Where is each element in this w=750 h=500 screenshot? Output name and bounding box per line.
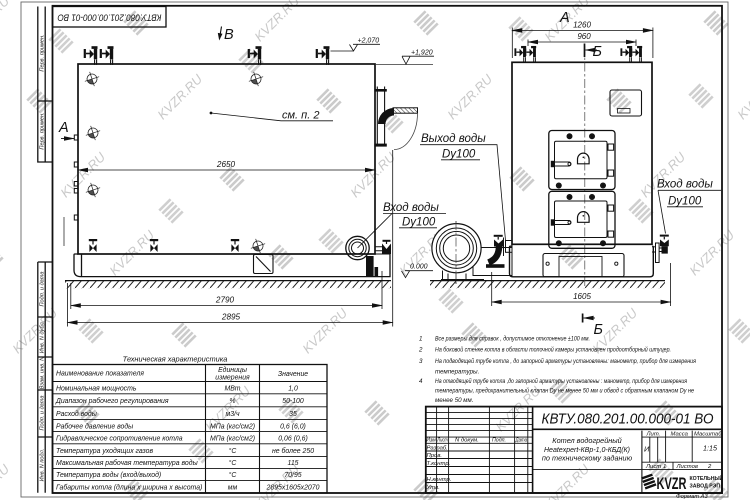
svg-text:Инв. N подл.: Инв. N подл. xyxy=(39,449,45,482)
svg-text:Котел водогрейный: Котел водогрейный xyxy=(552,436,621,445)
svg-text:1: 1 xyxy=(419,336,422,343)
svg-text:+2,070: +2,070 xyxy=(358,38,380,45)
svg-text:1260: 1260 xyxy=(573,21,591,30)
svg-text:Изм: Изм xyxy=(426,438,436,444)
svg-text:Максимальная рабочая температу: Максимальная рабочая температура воды xyxy=(56,459,198,467)
svg-text:Масса: Масса xyxy=(671,431,689,437)
svg-text:МПа (кгс/см2): МПа (кгс/см2) xyxy=(210,436,255,443)
svg-text:Номинальная мощность: Номинальная мощность xyxy=(56,386,137,393)
svg-text:Наименование показателя: Наименование показателя xyxy=(56,371,144,378)
svg-text:Расход воды: Расход воды xyxy=(56,410,97,418)
svg-text:МВт: МВт xyxy=(224,386,240,393)
svg-text:Масштаб: Масштаб xyxy=(694,431,722,437)
svg-text:115: 115 xyxy=(288,460,299,467)
svg-text:Т.контр.: Т.контр. xyxy=(427,461,451,467)
svg-text:50-100: 50-100 xyxy=(282,398,304,405)
svg-text:МПа (кгс/см2): МПа (кгс/см2) xyxy=(210,423,255,430)
svg-text:0,6 (6,0): 0,6 (6,0) xyxy=(280,423,306,430)
svg-text:0,06 (0,6): 0,06 (0,6) xyxy=(278,436,308,443)
svg-text:менее 50 мм.: менее 50 мм. xyxy=(435,397,474,404)
svg-text:Лист: Лист xyxy=(645,464,661,470)
svg-text:Пров.: Пров. xyxy=(427,453,443,459)
svg-text:Лист: Лист xyxy=(437,438,448,444)
svg-text:4: 4 xyxy=(419,378,423,385)
svg-text:°С: °С xyxy=(229,447,238,455)
svg-text:Dy100: Dy100 xyxy=(442,149,476,161)
svg-text:°С: °С xyxy=(229,471,238,479)
svg-text:Dy100: Dy100 xyxy=(402,217,436,229)
svg-text:ЗАВОД РЭП: ЗАВОД РЭП xyxy=(690,484,721,490)
svg-text:Подп. и дата: Подп. и дата xyxy=(39,271,45,306)
svg-text:температуры, предохранительный: температуры, предохранительный клапан Dу… xyxy=(435,388,694,395)
svg-text:1,0: 1,0 xyxy=(288,386,298,393)
svg-text:Выход воды: Выход воды xyxy=(421,133,486,145)
svg-text:960: 960 xyxy=(577,32,591,41)
svg-text:Габариты котла (длина х ширина: Габариты котла (длина х ширина х высота) xyxy=(56,484,202,492)
svg-text:А: А xyxy=(58,120,69,136)
svg-text:Разраб.: Разраб. xyxy=(427,446,448,452)
svg-text:На отводящей трубе котла ,до з: На отводящей трубе котла ,до запорной ар… xyxy=(435,378,688,385)
svg-text:Вход воды: Вход воды xyxy=(383,202,439,214)
svg-text:не более 250: не более 250 xyxy=(272,447,314,455)
svg-text:2: 2 xyxy=(707,464,712,470)
svg-text:2: 2 xyxy=(418,347,423,354)
svg-text:1:15: 1:15 xyxy=(703,444,718,453)
svg-text:1: 1 xyxy=(663,464,666,470)
svg-text:Б: Б xyxy=(594,322,603,338)
svg-text:Температура воды (вход/выход): Температура воды (вход/выход) xyxy=(56,471,161,479)
svg-text:На боковой стенке котла в обла: На боковой стенке котла в области топочн… xyxy=(435,347,671,354)
svg-text:измерения: измерения xyxy=(215,375,250,382)
svg-text:Единицы: Единицы xyxy=(218,366,247,374)
svg-text:KVZR: KVZR xyxy=(657,475,687,493)
svg-text:%: % xyxy=(229,398,235,405)
svg-text:70/95: 70/95 xyxy=(284,472,301,479)
svg-text:КВТУ.080.201.00.000-01 ВО: КВТУ.080.201.00.000-01 ВО xyxy=(58,12,162,22)
svg-text:В: В xyxy=(224,27,234,43)
svg-text:+1,920: +1,920 xyxy=(411,50,433,57)
svg-text:КОТЕЛЬНЫЙ: КОТЕЛЬНЫЙ xyxy=(690,474,724,482)
svg-text:На подводящей трубе котла ,: На подводящей трубе котла , до запорной … xyxy=(435,358,697,365)
svg-text:2650: 2650 xyxy=(216,160,236,169)
svg-text:Листов: Листов xyxy=(676,464,698,470)
svg-text:N докум.: N докум. xyxy=(455,438,479,444)
svg-text:Все размеры для справок , допу: Все размеры для справок , допустимое отк… xyxy=(435,336,590,343)
svg-text:°С: °С xyxy=(229,459,238,467)
svg-text:Температура уходящих газов: Температура уходящих газов xyxy=(56,447,154,455)
svg-text:Подп.: Подп. xyxy=(492,438,506,444)
svg-text:Формат А3: Формат А3 xyxy=(676,494,708,500)
svg-text:Взам. инв. N: Взам. инв. N xyxy=(39,356,45,390)
svg-text:Перв. примен.: Перв. примен. xyxy=(39,34,45,71)
svg-text:0.000: 0.000 xyxy=(410,263,428,270)
svg-text:Инв. N дубл.: Инв. N дубл. xyxy=(39,321,45,353)
svg-text:Перв. примен.: Перв. примен. xyxy=(39,112,45,149)
svg-text:И: И xyxy=(644,445,650,454)
svg-text:КВТУ.080.201.00.000-01 ВО: КВТУ.080.201.00.000-01 ВО xyxy=(542,411,714,428)
svg-text:Диапазон рабочего регулировани: Диапазон рабочего регулирования xyxy=(55,397,169,405)
svg-text:Значение: Значение xyxy=(278,371,308,378)
svg-text:1605: 1605 xyxy=(573,292,591,301)
svg-text:Б: Б xyxy=(593,44,602,60)
svg-text:Техническая характеристика: Техническая характеристика xyxy=(123,355,228,364)
svg-text:2895х1605х2070: 2895х1605х2070 xyxy=(266,485,320,492)
svg-text:по техническому заданию: по техническому заданию xyxy=(542,454,633,463)
svg-text:температуры.: температуры. xyxy=(435,369,479,376)
svg-text:Дата: Дата xyxy=(515,438,528,444)
svg-text:Лит.: Лит. xyxy=(646,431,661,437)
svg-text:м3/ч: м3/ч xyxy=(225,411,239,418)
svg-text:Утв.: Утв. xyxy=(426,485,440,491)
svg-text:мм: мм xyxy=(228,485,238,492)
svg-text:Рабочее давление воды: Рабочее давление воды xyxy=(56,422,133,430)
svg-text:2790: 2790 xyxy=(215,296,235,305)
svg-text:3: 3 xyxy=(419,358,423,365)
svg-text:Гидравлическое сопротивление к: Гидравлическое сопротивление котла xyxy=(56,435,183,443)
svg-text:Н.контр.: Н.контр. xyxy=(427,477,452,483)
svg-text:Вход воды: Вход воды xyxy=(657,179,713,191)
svg-text:35: 35 xyxy=(289,411,297,418)
svg-text:Подп. и дата: Подп. и дата xyxy=(39,395,45,430)
svg-text:Dy100: Dy100 xyxy=(668,196,702,208)
svg-text:А: А xyxy=(559,10,570,26)
svg-text:см. п. 2: см. п. 2 xyxy=(282,110,319,122)
svg-text:2895: 2895 xyxy=(221,313,241,322)
